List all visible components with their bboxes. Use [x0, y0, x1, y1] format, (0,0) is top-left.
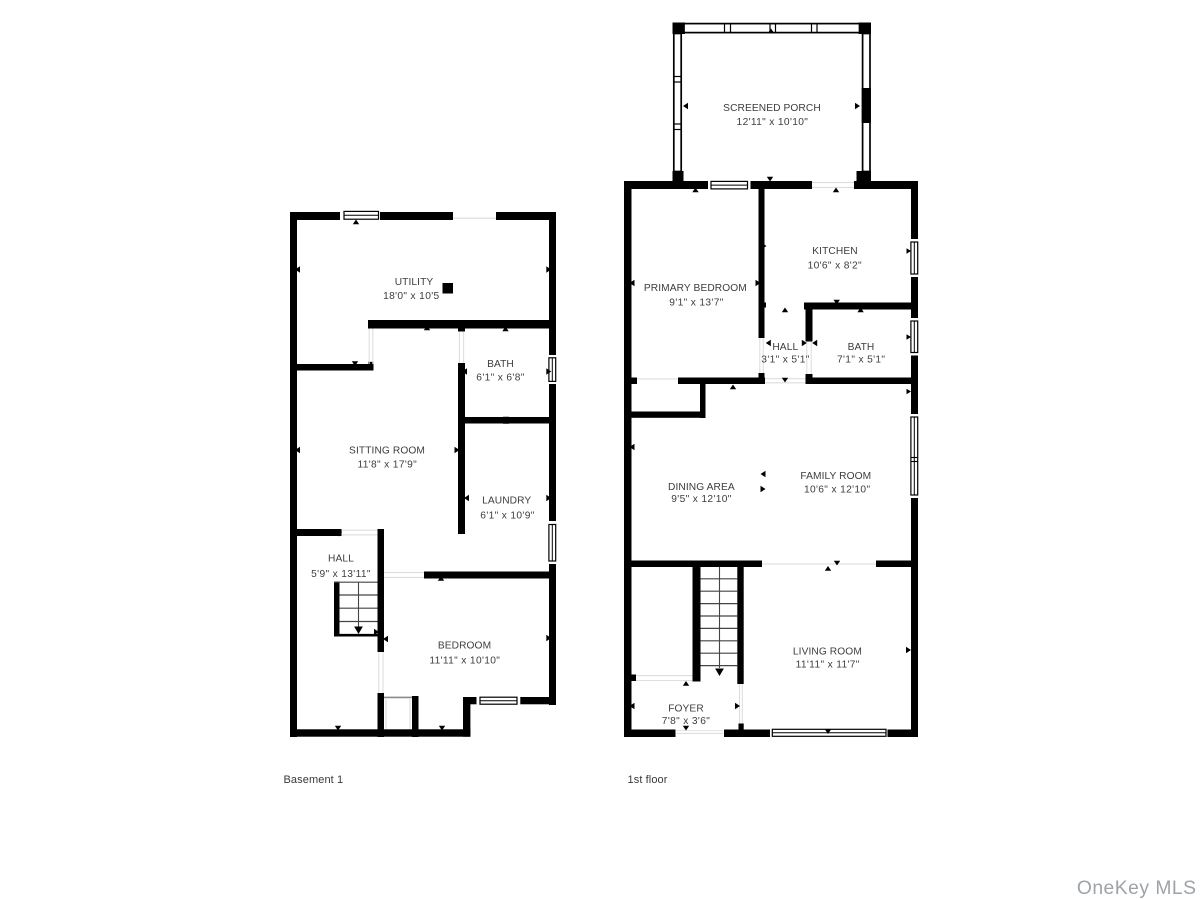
svg-text:18'0" x 10'5: 18'0" x 10'5 [383, 291, 439, 302]
svg-text:6'1" x 6'8": 6'1" x 6'8" [476, 373, 524, 384]
svg-text:9'5" x 12'10": 9'5" x 12'10" [671, 494, 731, 505]
svg-text:BATH: BATH [848, 342, 875, 353]
svg-text:HALL: HALL [772, 342, 798, 353]
svg-text:11'11" x 11'7": 11'11" x 11'7" [796, 660, 860, 671]
svg-text:UTILITY: UTILITY [395, 277, 434, 288]
svg-text:KITCHEN: KITCHEN [812, 246, 857, 257]
svg-text:12'11" x 10'10": 12'11" x 10'10" [737, 117, 809, 128]
svg-text:9'1" x 13'7": 9'1" x 13'7" [669, 297, 723, 308]
svg-text:BEDROOM: BEDROOM [438, 641, 491, 652]
svg-text:5'9" x 13'11": 5'9" x 13'11" [311, 569, 371, 580]
svg-text:DINING AREA: DINING AREA [668, 482, 735, 493]
svg-text:BATH: BATH [487, 359, 514, 370]
svg-text:PRIMARY BEDROOM: PRIMARY BEDROOM [644, 283, 747, 294]
svg-text:1st floor: 1st floor [628, 774, 668, 786]
svg-text:10'6" x 12'10": 10'6" x 12'10" [804, 484, 870, 495]
svg-text:Basement 1: Basement 1 [284, 774, 344, 786]
svg-text:FOYER: FOYER [668, 704, 704, 715]
svg-text:LAUNDRY: LAUNDRY [482, 496, 531, 507]
svg-text:SITTING ROOM: SITTING ROOM [349, 446, 425, 457]
svg-text:7'1" x 5'1": 7'1" x 5'1" [837, 355, 885, 366]
svg-text:HALL: HALL [328, 553, 354, 564]
svg-text:11'11" x 10'10": 11'11" x 10'10" [429, 656, 500, 667]
svg-text:FAMILY ROOM: FAMILY ROOM [800, 471, 871, 482]
svg-text:6'1" x 10'9": 6'1" x 10'9" [480, 510, 534, 521]
svg-text:SCREENED PORCH: SCREENED PORCH [723, 103, 821, 114]
svg-text:11'8" x 17'9": 11'8" x 17'9" [357, 460, 417, 471]
svg-text:10'6" x 8'2": 10'6" x 8'2" [808, 260, 862, 271]
svg-text:7'8" x 3'6": 7'8" x 3'6" [662, 716, 710, 727]
svg-text:3'1" x 5'1": 3'1" x 5'1" [761, 355, 809, 366]
svg-text:OneKey MLS: OneKey MLS [1077, 878, 1197, 899]
svg-text:LIVING ROOM: LIVING ROOM [793, 647, 862, 658]
